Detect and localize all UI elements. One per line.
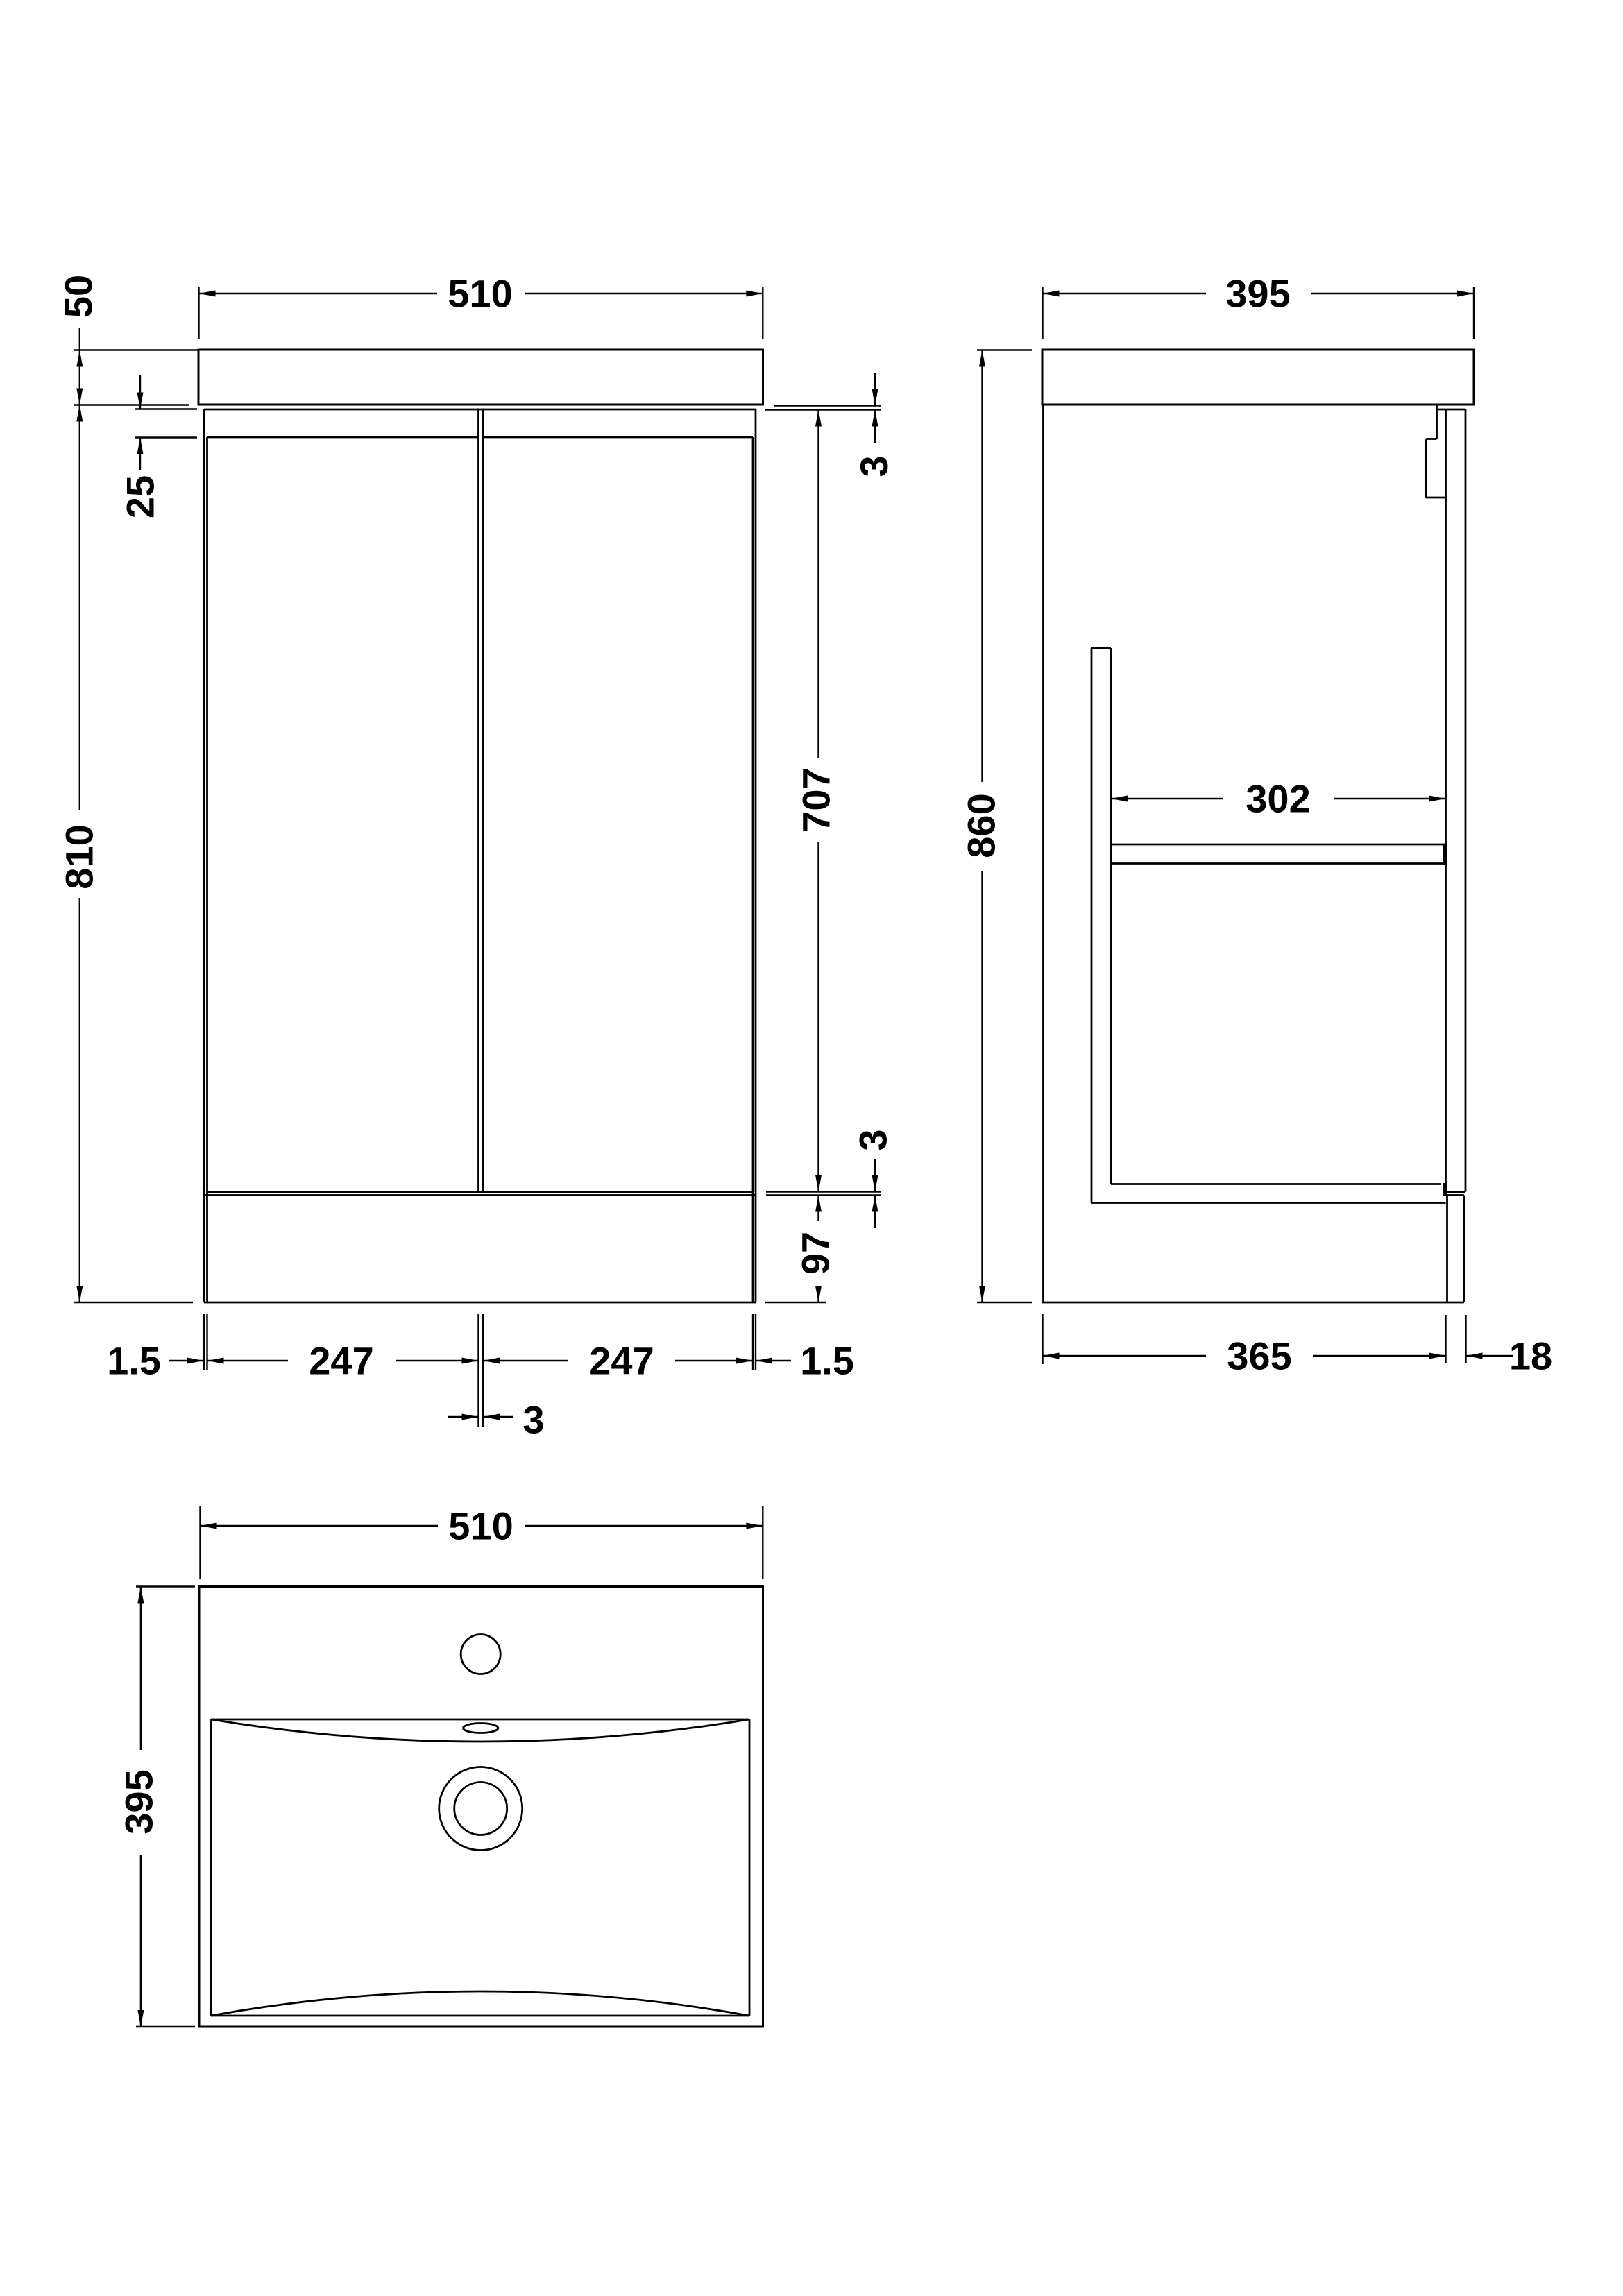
svg-text:18: 18 [1509,1334,1552,1378]
svg-text:395: 395 [117,1769,161,1834]
svg-text:25: 25 [119,475,162,518]
svg-text:1.5: 1.5 [800,1339,854,1383]
svg-text:50: 50 [57,275,101,318]
svg-text:247: 247 [309,1339,373,1383]
svg-text:510: 510 [448,1504,513,1548]
svg-text:510: 510 [448,272,512,316]
svg-text:365: 365 [1227,1334,1291,1378]
svg-text:860: 860 [960,793,1003,858]
svg-text:3: 3 [852,455,896,477]
svg-text:810: 810 [58,824,101,889]
svg-text:707: 707 [794,767,838,832]
svg-text:1.5: 1.5 [107,1339,161,1383]
svg-text:302: 302 [1246,777,1310,821]
svg-text:97: 97 [794,1232,838,1275]
svg-text:3: 3 [851,1129,895,1150]
svg-text:247: 247 [589,1339,654,1383]
svg-text:395: 395 [1225,272,1290,316]
svg-text:3: 3 [522,1398,544,1442]
